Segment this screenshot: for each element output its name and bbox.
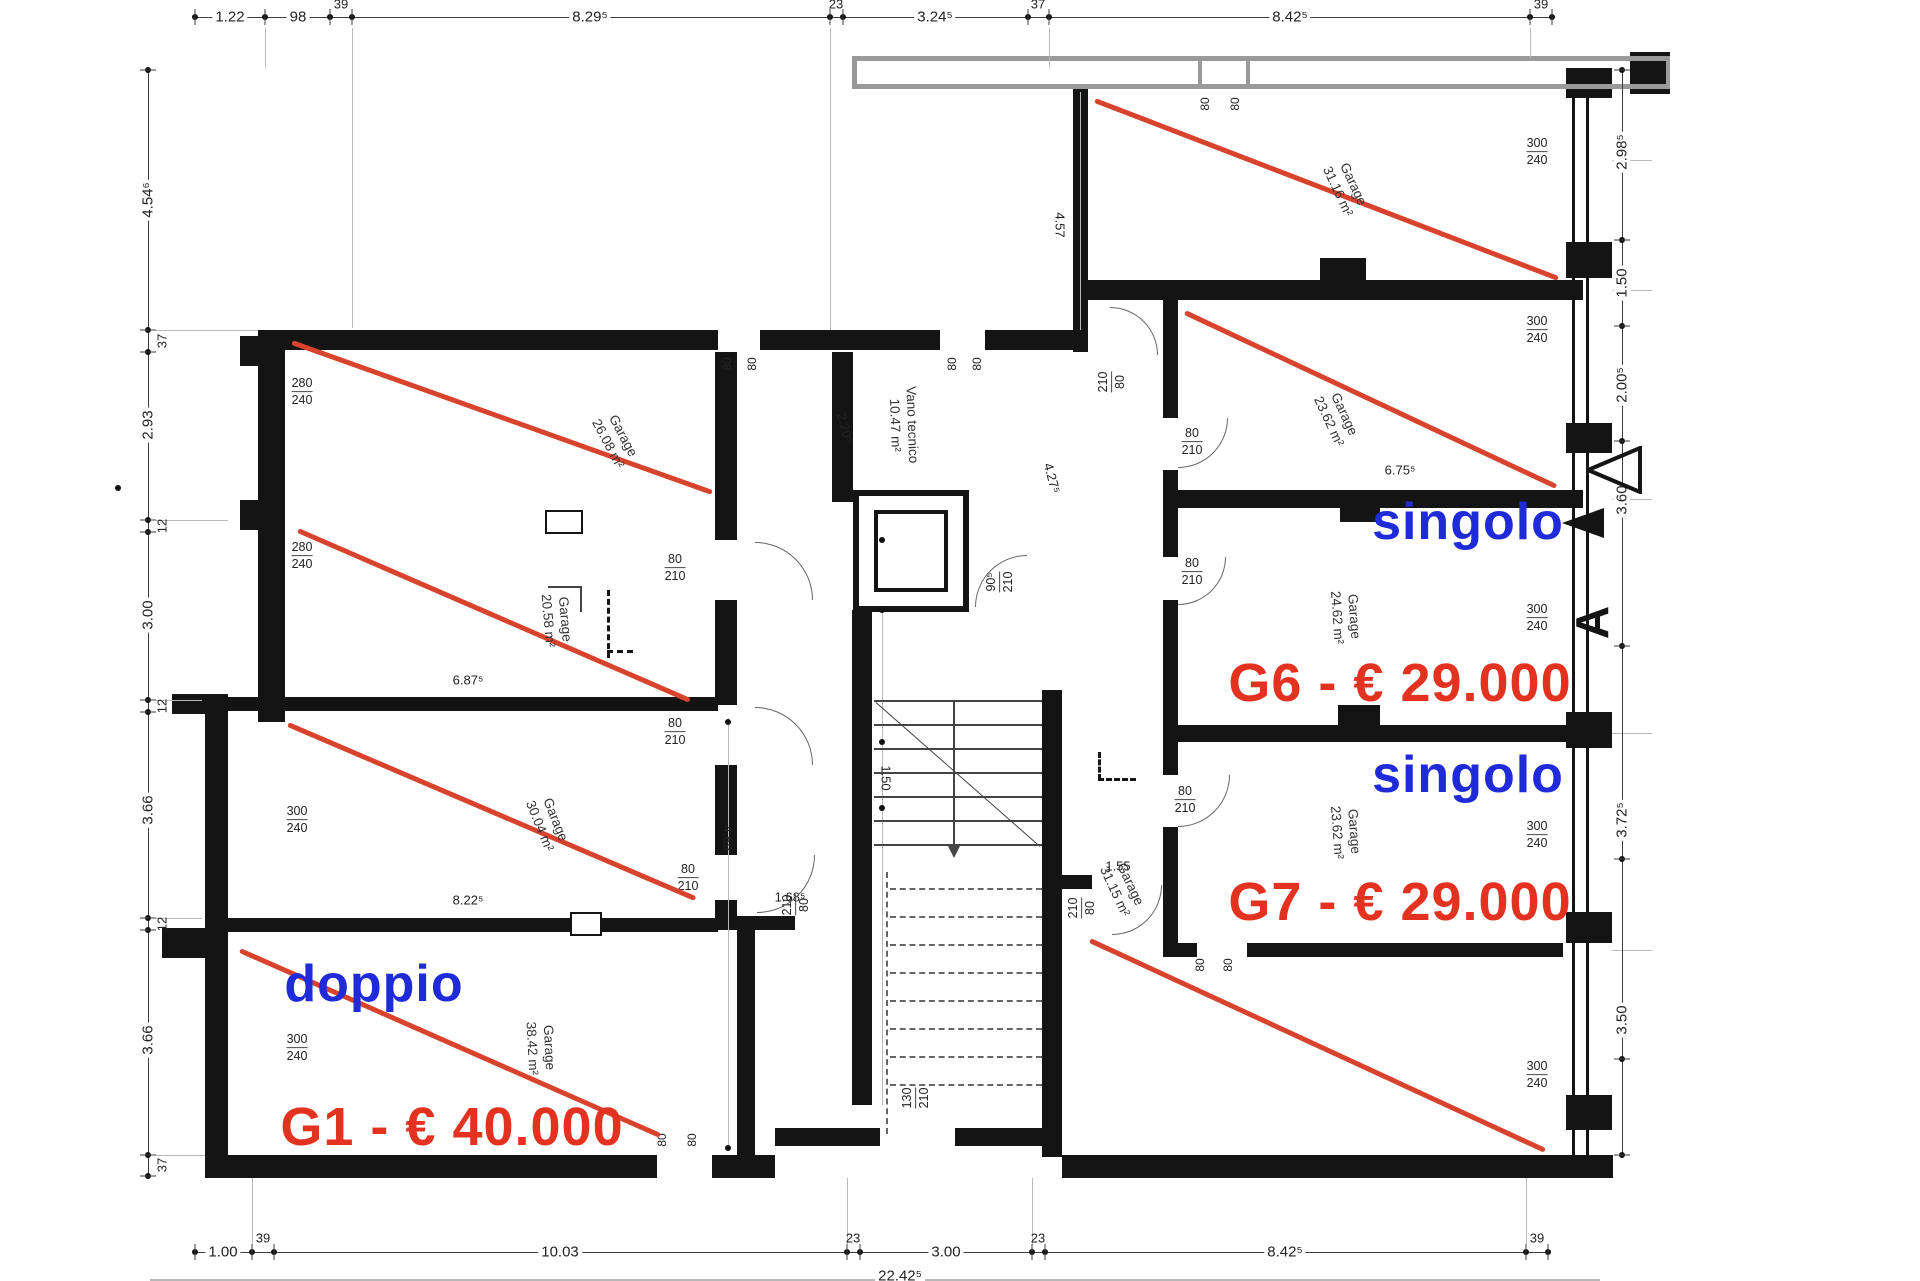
dim-tick-bar bbox=[860, 1244, 861, 1260]
wall bbox=[715, 900, 737, 930]
dim-tick-bar bbox=[1526, 1244, 1527, 1260]
dim-label: 6.87⁵ bbox=[450, 673, 487, 688]
wall bbox=[737, 930, 755, 1158]
dim-tick-bar bbox=[1049, 9, 1050, 25]
wall-existing bbox=[852, 56, 857, 89]
room-label: Garage24.62 m² bbox=[1326, 589, 1363, 645]
detail-line bbox=[580, 586, 582, 612]
wall bbox=[715, 352, 737, 540]
opening-size-label: 80 bbox=[1193, 958, 1207, 971]
dim-chain-line-right bbox=[1622, 70, 1623, 1155]
opening-size-label: 80 bbox=[685, 1133, 699, 1146]
dashed-detail-line bbox=[607, 590, 610, 658]
garage-marker-line bbox=[1184, 310, 1557, 489]
dim-label: 2.93 bbox=[140, 407, 157, 442]
dim-label: 3.00 bbox=[140, 597, 157, 632]
dim-tick-bar bbox=[195, 1244, 196, 1260]
dim-tick-bar bbox=[140, 70, 156, 71]
wall bbox=[228, 697, 718, 711]
dim-tick-bar bbox=[1045, 1244, 1046, 1260]
stair-tread bbox=[874, 796, 1042, 798]
dim-tick-bar bbox=[140, 1176, 156, 1177]
dim-label: 6.75⁵ bbox=[1382, 463, 1419, 478]
opening-size-label: 80 bbox=[1198, 97, 1212, 110]
dim-label: 12 bbox=[155, 696, 170, 716]
dim-label: 3.66 bbox=[140, 1022, 157, 1057]
wall bbox=[1062, 1155, 1583, 1178]
wall-existing bbox=[1246, 56, 1250, 89]
wall bbox=[1042, 690, 1062, 1157]
sale-label: singolo bbox=[1372, 745, 1564, 805]
wall bbox=[1320, 258, 1366, 280]
dim-label: 23 bbox=[1028, 1231, 1048, 1246]
dim-dot bbox=[879, 805, 885, 811]
door-swing-arc bbox=[755, 707, 813, 765]
room-label: Garage38.42 m² bbox=[522, 1021, 558, 1076]
dim-label: 37 bbox=[155, 331, 170, 351]
elevator-car bbox=[874, 510, 948, 592]
garage-door-size-label: 300240 bbox=[1527, 819, 1548, 851]
wall bbox=[162, 928, 228, 958]
wall bbox=[258, 330, 285, 722]
dim-label: 2.98⁵ bbox=[1614, 131, 1631, 172]
room-label: Garage20.58 m² bbox=[537, 592, 575, 648]
door-swing-arc bbox=[1178, 775, 1230, 827]
wall bbox=[228, 918, 718, 932]
wall bbox=[715, 600, 737, 705]
stair-tread bbox=[874, 748, 1042, 750]
garage-door-size-label: 300240 bbox=[1527, 314, 1548, 346]
door-size-label: 21080 bbox=[1096, 372, 1128, 393]
opening-size-label: 80 bbox=[745, 357, 759, 370]
dim-tick-bar bbox=[195, 9, 196, 25]
dim-label: 4.57 bbox=[1053, 209, 1068, 240]
wall-pier bbox=[545, 510, 583, 534]
dim-label: 1.22 bbox=[212, 9, 247, 26]
stair-edge-dashed bbox=[886, 872, 888, 1134]
dim-label: 3.00 bbox=[928, 1244, 963, 1261]
door-size-label: 80210 bbox=[665, 716, 686, 748]
door-swing-arc bbox=[755, 542, 813, 600]
dim-tick-bar bbox=[352, 9, 353, 25]
dim-label: 4.27⁵ bbox=[1040, 458, 1064, 497]
dim-tick-bar bbox=[1614, 326, 1630, 327]
wall bbox=[760, 330, 940, 350]
dim-label: 39 bbox=[253, 1231, 273, 1246]
stair-tread bbox=[874, 700, 1042, 702]
dim-label: 1.50 bbox=[1614, 265, 1631, 300]
dashed-detail-line bbox=[1098, 752, 1101, 780]
garage-marker-line bbox=[1089, 938, 1546, 1153]
wall bbox=[1247, 943, 1563, 957]
dim-tick-bar bbox=[1552, 9, 1553, 25]
opening-size-label: 80 bbox=[1221, 958, 1235, 971]
sale-label: singolo bbox=[1372, 492, 1564, 552]
wall bbox=[1062, 875, 1092, 889]
sale-label: G7 - € 29.000 bbox=[1228, 871, 1571, 933]
witness-line bbox=[1049, 28, 1050, 68]
dim-dot bbox=[115, 485, 121, 491]
dim-label: 3.72⁵ bbox=[1614, 799, 1631, 840]
dim-chain-line-top bbox=[195, 17, 1552, 18]
wall bbox=[172, 694, 228, 714]
garage-marker-line bbox=[297, 528, 691, 703]
dim-label: 8.42⁵ bbox=[1264, 1244, 1305, 1261]
witness-line bbox=[830, 28, 831, 330]
sale-label: doppio bbox=[284, 954, 463, 1014]
garage-door-size-label: 300240 bbox=[287, 1032, 308, 1064]
opening-size-label: 80 bbox=[1228, 97, 1242, 110]
wall bbox=[1088, 280, 1583, 300]
garage-marker-line bbox=[291, 340, 713, 495]
stair-tread-dashed bbox=[890, 1000, 1042, 1002]
wall bbox=[258, 330, 718, 350]
dim-tick-bar bbox=[1614, 240, 1630, 241]
wall bbox=[712, 1155, 775, 1178]
garage-door-size-label: 300240 bbox=[1527, 1059, 1548, 1091]
opening-size-label: 80 bbox=[945, 357, 959, 370]
dim-label: 3.50 bbox=[1614, 1002, 1631, 1037]
door-swing-arc bbox=[1110, 307, 1158, 355]
witness-line bbox=[156, 330, 258, 331]
floor-plan-canvas: 1.2298398.29⁵233.24⁵378.42⁵391.003910.03… bbox=[0, 0, 1920, 1281]
dim-label: 3.24⁵ bbox=[914, 9, 955, 26]
stair-tread-dashed bbox=[890, 972, 1042, 974]
dim-label: 37 bbox=[1028, 0, 1048, 12]
door-swing-arc bbox=[975, 555, 1027, 607]
stair-tread-dashed bbox=[890, 1056, 1042, 1058]
witness-line bbox=[265, 28, 266, 68]
dim-dot bbox=[879, 537, 885, 543]
witness-line bbox=[728, 718, 729, 1150]
dim-label: 8.42⁵ bbox=[1269, 9, 1310, 26]
stair-tread-dashed bbox=[890, 944, 1042, 946]
dim-tick-bar bbox=[274, 1244, 275, 1260]
garage-door-size-label: 280240 bbox=[292, 540, 313, 572]
dim-label: 2.00⁵ bbox=[1614, 364, 1631, 405]
wall bbox=[1163, 827, 1178, 957]
dim-label: 1.00 bbox=[205, 1244, 240, 1261]
dim-label: 39 bbox=[1527, 1231, 1547, 1246]
wall bbox=[737, 916, 795, 930]
section-letter: A bbox=[1565, 605, 1619, 639]
wall bbox=[1563, 1155, 1613, 1178]
dim-chain-line-bottom bbox=[195, 1252, 1548, 1253]
wall bbox=[205, 1155, 657, 1178]
wall bbox=[240, 336, 258, 366]
door-swing-arc bbox=[1178, 418, 1228, 468]
garage-door-size-label: 280240 bbox=[292, 376, 313, 408]
wall-existing bbox=[1666, 56, 1670, 89]
dim-label: 37 bbox=[155, 1155, 170, 1175]
dim-label: 8.29⁵ bbox=[569, 9, 610, 26]
dim-dot bbox=[879, 607, 885, 613]
stair-tread bbox=[874, 820, 1042, 822]
room-label: Vano tecnico10.47 m² bbox=[885, 386, 921, 464]
stair-tread-dashed bbox=[890, 1028, 1042, 1030]
stair-tread-dashed bbox=[890, 916, 1042, 918]
dim-label: 23 bbox=[826, 0, 846, 12]
wall bbox=[1163, 300, 1178, 418]
stair-tread-dashed bbox=[890, 888, 1042, 890]
dim-label: 1.50 bbox=[879, 762, 894, 793]
garage-door-size-label: 300240 bbox=[1527, 602, 1548, 634]
dim-tick-bar bbox=[1614, 70, 1630, 71]
room-label: Garage31.16 m² bbox=[1318, 157, 1371, 220]
wall-existing bbox=[855, 84, 1670, 89]
stair-arrow-shaft bbox=[953, 702, 955, 846]
witness-line bbox=[1612, 733, 1652, 734]
sale-label: G6 - € 29.000 bbox=[1228, 652, 1571, 714]
dim-label: 8.22⁵ bbox=[450, 893, 487, 908]
wall bbox=[1167, 943, 1197, 957]
dim-label: 12 bbox=[155, 516, 170, 536]
wall-existing bbox=[1198, 56, 1202, 89]
garage-door-size-label: 300240 bbox=[287, 804, 308, 836]
dim-tick-bar bbox=[1614, 646, 1630, 647]
detail-line bbox=[548, 586, 582, 588]
witness-line bbox=[1612, 950, 1652, 951]
section-marker-arrow-icon bbox=[1562, 508, 1604, 538]
room-label: Garage23.62 m² bbox=[1326, 804, 1363, 860]
stair-tread-dashed bbox=[890, 1084, 1042, 1086]
door-swing-arc bbox=[1178, 557, 1226, 605]
dim-tick-bar bbox=[252, 1244, 253, 1260]
dim-label: 4.69 bbox=[721, 822, 736, 853]
opening-size-label: 80 bbox=[970, 357, 984, 370]
dim-tick-bar bbox=[1032, 1244, 1033, 1260]
wall bbox=[1163, 600, 1178, 775]
wall bbox=[852, 700, 872, 1105]
door-size-label: 80210 bbox=[665, 552, 686, 584]
wall bbox=[1178, 725, 1583, 742]
sale-label: G1 - € 40.000 bbox=[280, 1096, 623, 1158]
wall bbox=[240, 500, 258, 530]
dim-tick-bar bbox=[847, 1244, 848, 1260]
witness-line bbox=[1530, 28, 1531, 58]
garage-marker-line bbox=[287, 722, 696, 901]
door-size-label: 21080 bbox=[1066, 898, 1098, 919]
dim-label: 23 bbox=[843, 1231, 863, 1246]
dim-tick-bar bbox=[1614, 1155, 1630, 1156]
dim-tick-bar bbox=[1548, 1244, 1549, 1260]
wall bbox=[775, 1128, 880, 1146]
dim-label: 4.54⁶ bbox=[140, 179, 157, 220]
dashed-detail-line bbox=[1098, 778, 1136, 781]
dim-label: 10.03 bbox=[538, 1244, 582, 1261]
opening-size-label: 80 bbox=[720, 357, 734, 370]
witness-line bbox=[352, 28, 353, 328]
garage-door-size-label: 300240 bbox=[1527, 136, 1548, 168]
wall-existing bbox=[855, 56, 1670, 61]
dim-tick-bar bbox=[1614, 1059, 1630, 1060]
witness-line bbox=[1080, 92, 1081, 330]
dim-label: 39 bbox=[1531, 0, 1551, 12]
stair-arrow-down-icon bbox=[948, 846, 960, 858]
dim-dot bbox=[725, 1145, 731, 1151]
dim-label: 39 bbox=[331, 0, 351, 12]
dim-tick-bar bbox=[265, 9, 266, 25]
dashed-detail-line bbox=[607, 650, 633, 653]
wall-pier bbox=[570, 912, 602, 936]
room-label: Garage23.62 m² bbox=[1309, 387, 1362, 450]
dim-tick-bar bbox=[1614, 859, 1630, 860]
section-marker-triangle-icon bbox=[1586, 446, 1642, 494]
dim-tick-bar bbox=[140, 352, 156, 353]
wall bbox=[1163, 470, 1178, 557]
dim-dot bbox=[879, 739, 885, 745]
dim-label: 22.42⁵ bbox=[875, 1268, 925, 1281]
dim-tick-bar bbox=[1614, 441, 1630, 442]
dim-label: 98 bbox=[287, 9, 310, 26]
dim-label: 3.66 bbox=[140, 792, 157, 827]
door-size-label: 130210 bbox=[900, 1088, 932, 1109]
dim-dot bbox=[725, 719, 731, 725]
dim-label: 12 bbox=[155, 914, 170, 934]
wall bbox=[852, 610, 872, 705]
